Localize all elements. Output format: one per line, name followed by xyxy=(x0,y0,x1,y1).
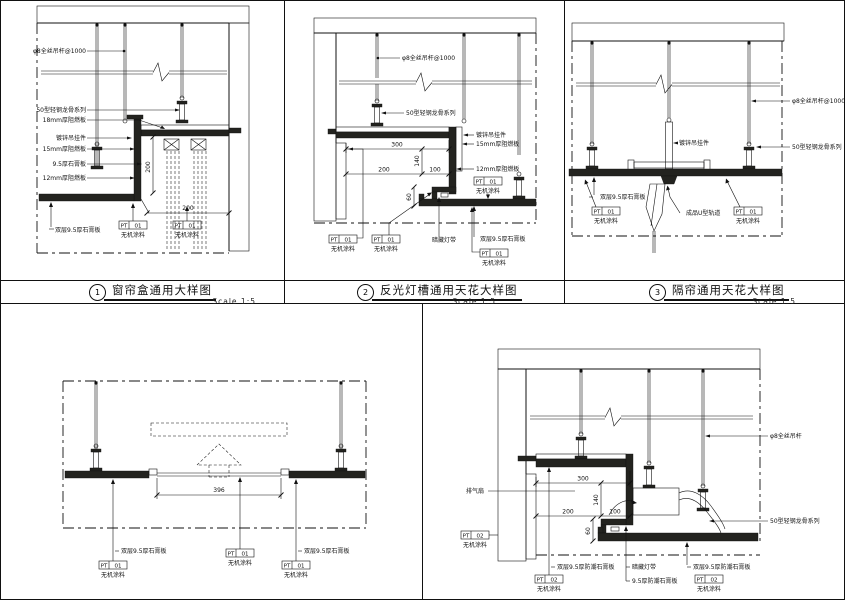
d2-dim-100: 100 xyxy=(429,167,441,174)
detail-scale-1: Scale 1:5 xyxy=(161,297,256,306)
d5-dgyp-right-label: 双层9.5厚防潮石膏板 xyxy=(693,563,751,571)
svg-text:01: 01 xyxy=(189,224,196,230)
svg-text:PT: PT xyxy=(482,252,489,258)
detail-1-curtain-box-drawing: φ8全丝吊杆@1000 50型轻钢龙骨系列 18mm厚阻燃板 镀锌吊挂件 15m… xyxy=(1,1,284,280)
detail-scale-2: Scale 1:5 xyxy=(401,297,496,306)
d4-finish-tag-left: PT 01 无机涂料 xyxy=(99,561,127,579)
svg-text:无机涂料: 无机涂料 xyxy=(482,259,506,267)
svg-text:PT: PT xyxy=(463,534,470,540)
d2-dgyp-label: 双层9.5厚石膏板 xyxy=(480,235,526,243)
d2-finish-tag-a: PT 01 无机涂料 xyxy=(329,235,357,253)
svg-text:PT: PT xyxy=(736,210,743,216)
svg-text:PT: PT xyxy=(228,552,235,558)
d1-hanger-label: 镀锌吊挂件 xyxy=(56,134,86,142)
svg-text:无机涂料: 无机涂料 xyxy=(374,245,398,253)
svg-text:01: 01 xyxy=(496,252,503,258)
svg-text:无机涂料: 无机涂料 xyxy=(228,559,252,567)
d4-dim-396: 396 xyxy=(213,487,225,494)
detail-title-2: 反光灯槽通用天花大样图 xyxy=(380,282,518,298)
d3-track-label: 成品U型轨道 xyxy=(686,209,720,217)
svg-text:无机涂料: 无机涂料 xyxy=(697,585,721,593)
drawing-sheet: φ8全丝吊杆@1000 50型轻钢龙骨系列 18mm厚阻燃板 镀锌吊挂件 15m… xyxy=(0,0,845,600)
d5-gyp-label: 9.5厚防潮石膏板 xyxy=(632,577,678,585)
svg-text:01: 01 xyxy=(115,564,122,570)
d5-fan-label: 排气扇 xyxy=(466,487,484,495)
detail-title-1: 窗帘盒通用大样图 xyxy=(112,282,212,298)
detail-2-light-trough-drawing: φ8全丝吊杆@1000 50型轻钢龙骨系列 镀锌吊挂件 15mm厚阻燃板 12m… xyxy=(284,1,564,280)
d3-dgyp-label: 双层9.5厚石膏板 xyxy=(600,193,646,201)
svg-text:01: 01 xyxy=(750,210,757,216)
d1-gyp-label: 9.5厚石膏板 xyxy=(52,160,86,168)
svg-text:01: 01 xyxy=(298,564,305,570)
d3-keel-label: 50型轻钢龙骨系列 xyxy=(792,143,842,151)
d5-rod-label: φ8全丝吊杆 xyxy=(770,432,802,440)
svg-text:PT: PT xyxy=(284,564,291,570)
d4-finish-tag-right: PT 01 无机涂料 xyxy=(282,561,310,579)
svg-text:PT: PT xyxy=(121,224,128,230)
detail-title-3: 隔帘通用天花大样图 xyxy=(672,282,785,298)
svg-text:PT: PT xyxy=(697,578,704,584)
svg-text:PT: PT xyxy=(101,564,108,570)
d1-dgyp-label: 双层9.5厚石膏板 xyxy=(55,226,101,234)
svg-text:PT: PT xyxy=(331,238,338,244)
d2-keel-label: 50型轻钢龙骨系列 xyxy=(406,109,456,117)
d2-dim-60: 60 xyxy=(406,193,413,201)
d5-keel-label: 50型轻钢龙骨系列 xyxy=(770,517,820,525)
d1-rod-label: φ8全丝吊杆@1000 xyxy=(33,47,86,55)
svg-text:01: 01 xyxy=(388,238,395,244)
svg-text:01: 01 xyxy=(490,180,497,186)
svg-text:01: 01 xyxy=(135,224,142,230)
d5-dim-100: 100 xyxy=(609,509,621,516)
svg-text:无机涂料: 无机涂料 xyxy=(594,217,618,225)
d3-curtain xyxy=(646,184,665,253)
d5-finish-tag-right: PT 02 无机涂料 xyxy=(695,575,723,593)
svg-text:PT: PT xyxy=(594,210,601,216)
d5-dgyp-left-label: 双层9.5厚防潮石膏板 xyxy=(557,563,615,571)
d2-dim-300: 300 xyxy=(391,142,403,149)
d5-dim-200: 200 xyxy=(562,509,574,516)
d3-hanger-label: 镀锌吊挂件 xyxy=(679,139,709,147)
grid-line-horizontal-1 xyxy=(1,280,845,281)
d2-finish-tag-c: PT 01 无机涂料 xyxy=(480,249,508,267)
d2-dim-140: 140 xyxy=(414,155,421,167)
d3-finish-tag-left: PT 01 无机涂料 xyxy=(592,207,620,225)
d2-rod-label: φ8全丝吊杆@1000 xyxy=(402,54,455,62)
d1-curtain-track xyxy=(164,139,206,150)
d5-light-label: 暗藏灯带 xyxy=(632,563,656,571)
d1-keel-label: 50型轻钢龙骨系列 xyxy=(36,106,86,114)
svg-text:无机涂料: 无机涂料 xyxy=(101,571,125,579)
svg-text:PT: PT xyxy=(537,578,544,584)
d2-finish-tag-b: PT 01 无机涂料 xyxy=(372,235,400,253)
svg-text:无机涂料: 无机涂料 xyxy=(476,187,500,195)
d2-hanger-label: 镀锌吊挂件 xyxy=(476,131,506,139)
svg-text:01: 01 xyxy=(345,238,352,244)
detail-5-exhaust-fan-trough-drawing: φ8全丝吊杆 50型轻钢龙骨系列 排气扇 双层9.5厚防潮石膏板 暗藏灯带 9.… xyxy=(423,303,845,600)
d2-dim-200: 200 xyxy=(378,167,390,174)
d1-structure xyxy=(37,6,249,253)
detail-scale-3: Scale 1:5 xyxy=(701,297,796,306)
d2-board12-label: 12mm厚阻燃板 xyxy=(476,165,519,173)
svg-text:02: 02 xyxy=(711,578,718,584)
d1-dim-horizontal: 200 xyxy=(182,205,194,212)
svg-text:PT: PT xyxy=(374,238,381,244)
d4-finish-tag-center: PT 01 无机涂料 xyxy=(226,549,254,567)
d5-finish-tag-wall: PT 02 无机涂料 xyxy=(461,531,489,549)
svg-text:无机涂料: 无机涂料 xyxy=(284,571,308,579)
svg-text:01: 01 xyxy=(608,210,615,216)
d5-dim-300: 300 xyxy=(577,476,589,483)
d1-board18-label: 18mm厚阻燃板 xyxy=(43,116,86,124)
svg-text:PT: PT xyxy=(476,180,483,186)
svg-text:无机涂料: 无机涂料 xyxy=(331,245,355,253)
svg-text:02: 02 xyxy=(477,534,484,540)
d2-finish-tag-right: PT 01 无机涂料 xyxy=(474,177,502,195)
d1-finish-tag-1: PT 01 无机涂料 xyxy=(119,221,147,239)
d3-finish-tag-right: PT 01 无机涂料 xyxy=(734,207,762,225)
svg-text:无机涂料: 无机涂料 xyxy=(121,231,145,239)
d5-dim-140: 140 xyxy=(593,494,600,506)
d2-structure xyxy=(314,18,536,223)
d4-dgyp-left-label: 双层9.5厚石膏板 xyxy=(121,547,167,555)
d5-finish-tag-left: PT 02 无机涂料 xyxy=(535,575,563,593)
svg-text:无机涂料: 无机涂料 xyxy=(736,217,760,225)
d2-board15-label: 15mm厚阻燃板 xyxy=(476,140,519,148)
svg-text:无机涂料: 无机涂料 xyxy=(463,541,487,549)
svg-text:01: 01 xyxy=(242,552,249,558)
svg-text:无机涂料: 无机涂料 xyxy=(537,585,561,593)
d1-dim-vertical: 200 xyxy=(145,161,152,173)
svg-text:PT: PT xyxy=(175,224,182,230)
svg-text:02: 02 xyxy=(551,578,558,584)
detail-3-partition-curtain-drawing: φ8全丝吊杆@1000 50型轻钢龙骨系列 镀锌吊挂件 双层9.5厚石膏板 成品… xyxy=(564,1,845,280)
svg-text:无机涂料: 无机涂料 xyxy=(175,231,199,239)
d5-dim-60: 60 xyxy=(585,527,592,535)
d4-structure xyxy=(63,381,366,528)
d3-rod-label: φ8全丝吊杆@1000 xyxy=(792,97,845,105)
d4-dgyp-right-label: 双层9.5厚石膏板 xyxy=(304,547,350,555)
d1-board12-label: 12mm厚阻燃板 xyxy=(43,174,86,182)
d1-finish-tag-2: PT 01 无机涂料 xyxy=(173,221,201,239)
d5-structure xyxy=(498,349,760,561)
d2-light-label: 暗藏灯带 xyxy=(432,236,456,244)
d1-board15-label: 15mm厚阻燃板 xyxy=(43,145,86,153)
detail-4-access-panel-drawing: 双层9.5厚石膏板 双层9.5厚石膏板 396 PT 01 无机涂料 PT 01… xyxy=(1,303,422,600)
